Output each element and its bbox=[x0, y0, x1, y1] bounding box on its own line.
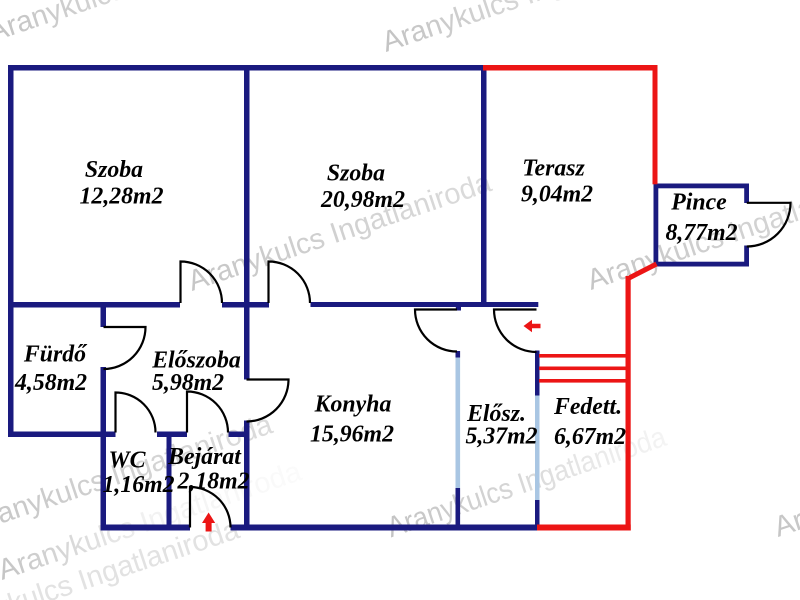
svg-text:9,04m2: 9,04m2 bbox=[521, 182, 593, 208]
svg-text:20,98m2: 20,98m2 bbox=[320, 187, 405, 213]
svg-text:Fürdő: Fürdő bbox=[23, 342, 88, 368]
svg-text:4,58m2: 4,58m2 bbox=[14, 370, 87, 396]
svg-text:5,37m2: 5,37m2 bbox=[465, 424, 537, 450]
svg-text:Szoba: Szoba bbox=[327, 161, 385, 187]
svg-text:6,67m2: 6,67m2 bbox=[554, 424, 626, 450]
svg-text:WC: WC bbox=[108, 448, 146, 474]
svg-text:8,77m2: 8,77m2 bbox=[665, 220, 737, 246]
svg-text:Pince: Pince bbox=[670, 190, 727, 216]
svg-text:Bejárat: Bejárat bbox=[167, 444, 242, 470]
svg-text:Fedett.: Fedett. bbox=[553, 394, 622, 420]
svg-text:Konyha: Konyha bbox=[314, 392, 392, 418]
svg-text:Szoba: Szoba bbox=[85, 157, 143, 183]
svg-text:5,98m2: 5,98m2 bbox=[152, 370, 224, 396]
svg-text:2,18m2: 2,18m2 bbox=[176, 469, 249, 495]
svg-text:1,16m2: 1,16m2 bbox=[102, 472, 174, 498]
svg-text:Terasz: Terasz bbox=[522, 156, 585, 182]
svg-text:12,28m2: 12,28m2 bbox=[80, 184, 164, 210]
svg-text:15,96m2: 15,96m2 bbox=[310, 422, 394, 448]
